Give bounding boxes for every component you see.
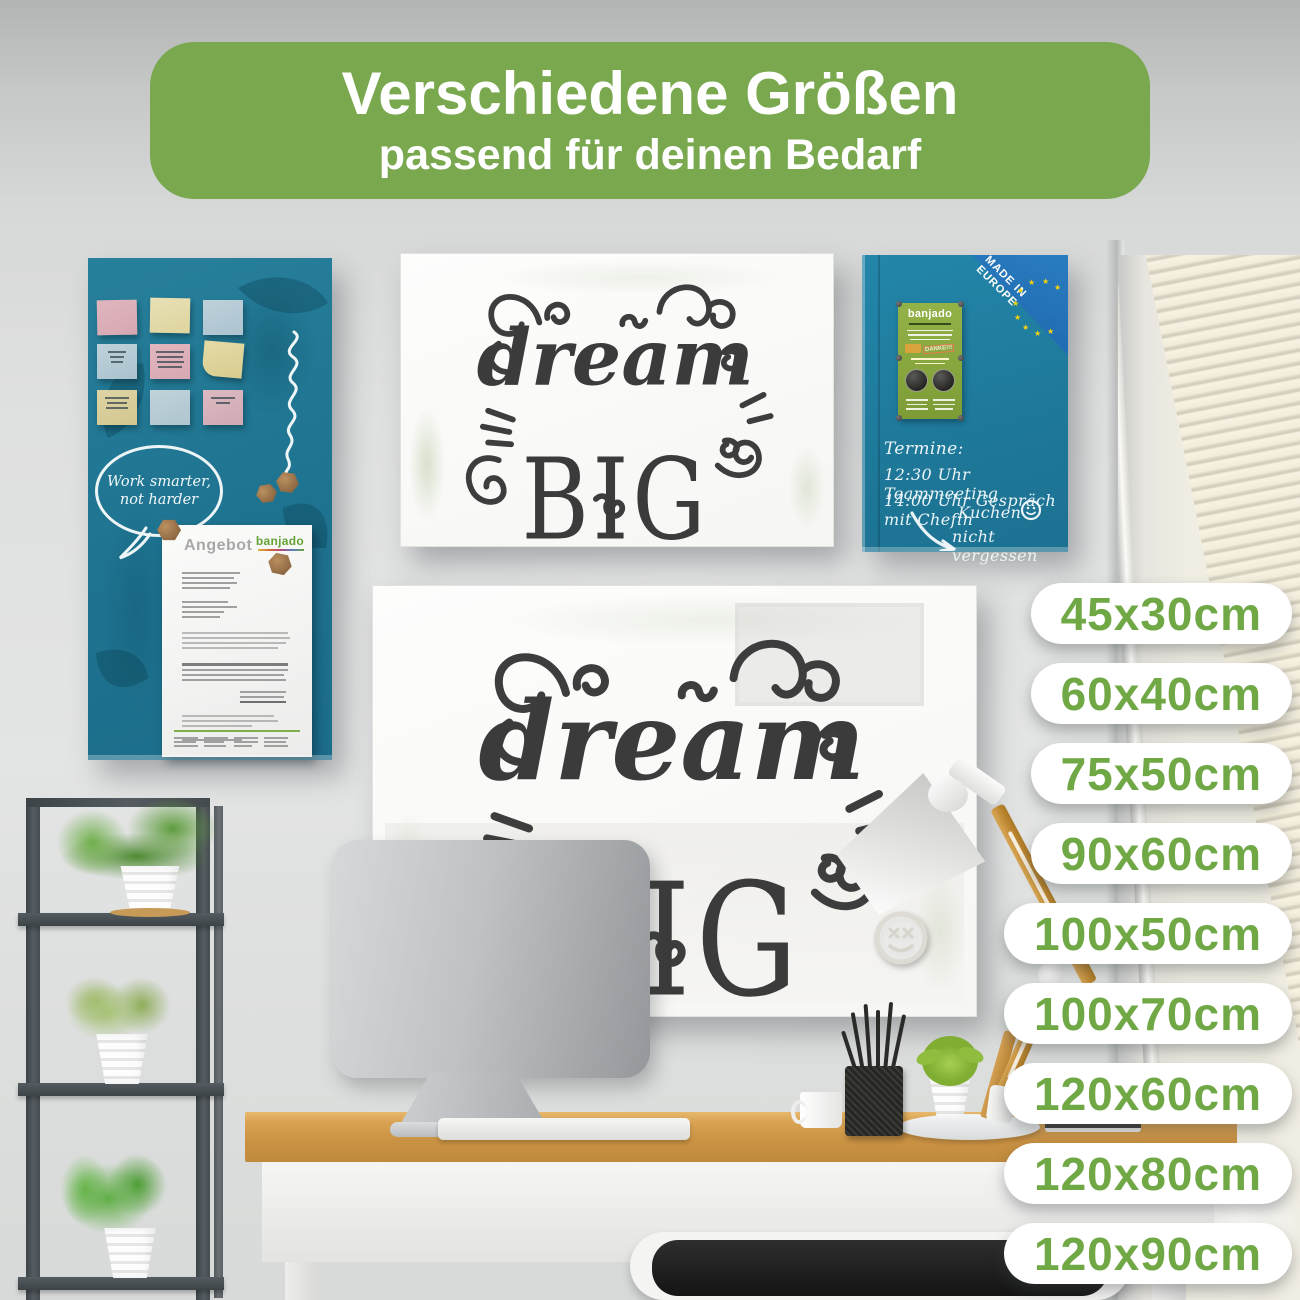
bubble-text-line1: Work smarter, xyxy=(107,473,211,491)
sticky-note xyxy=(97,390,137,425)
plant-pot xyxy=(102,1228,158,1278)
glass-reflection xyxy=(878,255,880,552)
flyer-brand: banjado xyxy=(898,308,962,320)
magnet-pin-icon xyxy=(896,355,902,361)
size-badge: 75x50cm xyxy=(1031,743,1292,804)
header-banner: Verschiedene Größen passend für deinen B… xyxy=(150,42,1150,199)
magnet-pin-icon xyxy=(958,301,964,307)
handwriting-heading: Termine: xyxy=(884,439,964,459)
glass-noteboard: Work smarter, not harder Angebot banjado xyxy=(88,258,332,760)
size-badge: 100x70cm xyxy=(1004,983,1292,1044)
desk-leg xyxy=(285,1262,319,1300)
document-footer xyxy=(174,727,300,749)
document-title: Angebot xyxy=(184,537,252,555)
potted-plant xyxy=(56,1148,172,1240)
shelf-board xyxy=(18,1083,224,1096)
page-title: Verschiedene Größen xyxy=(342,62,959,125)
page-subtitle: passend für deinen Bedarf xyxy=(379,131,921,180)
speech-bubble-tail xyxy=(116,526,156,562)
smiley-icon xyxy=(1020,499,1042,521)
size-badge: 60x40cm xyxy=(1031,663,1292,724)
keyboard xyxy=(438,1118,690,1140)
glass-planner-board: MADE IN EUROPE ★ ★ ★ ★ ★ ★ ★ ★ ★ banjado… xyxy=(862,255,1068,552)
size-badge: 120x90cm xyxy=(1004,1223,1292,1284)
dog-photo xyxy=(932,369,955,392)
dream-word: dream xyxy=(477,312,754,403)
big-word: BIG xyxy=(521,436,709,541)
size-badge: 120x60cm xyxy=(1004,1063,1292,1124)
dog-photo xyxy=(905,369,928,392)
sticky-note xyxy=(150,344,190,379)
pencil-cup xyxy=(845,1066,903,1136)
sticky-note xyxy=(97,300,138,336)
size-badge: 100x50cm xyxy=(1004,903,1292,964)
dog-photos xyxy=(898,369,962,392)
product-scene: Verschiedene Größen passend für deinen B… xyxy=(0,0,1300,1300)
logo-colorbar xyxy=(258,549,304,551)
glass-edge xyxy=(88,755,332,760)
size-badge-list: 45x30cm 60x40cm 75x50cm 90x60cm 100x50cm… xyxy=(1004,583,1292,1284)
dream-big-board-small: dream BIG xyxy=(400,253,834,547)
plant-pot xyxy=(94,1034,150,1084)
lamp-cap xyxy=(928,778,968,812)
coffee-mug xyxy=(800,1092,842,1128)
handwriting-cake2: nicht vergessen xyxy=(952,527,1068,565)
squiggle-doodle xyxy=(284,328,308,478)
magnet-pin-icon xyxy=(958,415,964,421)
shelf-rail xyxy=(26,800,40,1300)
sticky-note xyxy=(150,390,190,425)
glass-edge xyxy=(862,255,865,552)
size-badge: 45x30cm xyxy=(1031,583,1292,644)
plant-pot xyxy=(118,866,182,914)
magnet-pin-icon xyxy=(896,415,902,421)
sticky-note xyxy=(203,390,243,425)
handwriting-cake1: Kuchen xyxy=(958,503,1021,522)
succulent-plant xyxy=(922,1036,978,1086)
imac-back xyxy=(332,840,650,1078)
pot-saucer xyxy=(110,908,190,917)
dream-big-artwork: dream BIG xyxy=(414,260,820,540)
bubble-text-line2: not harder xyxy=(120,491,198,509)
offer-document: Angebot banjado xyxy=(162,525,312,757)
sticky-note xyxy=(97,344,137,379)
sticky-note xyxy=(203,300,243,335)
size-badge: 120x80cm xyxy=(1004,1143,1292,1204)
magnet-pin-icon xyxy=(896,301,902,307)
shelf-rail xyxy=(214,806,223,1298)
flyer-highlight-box xyxy=(905,344,921,353)
sticky-note xyxy=(202,340,245,378)
glass-edge xyxy=(862,547,1068,552)
danke-stamp: DANKE!!! xyxy=(923,343,955,354)
document-text-lines xyxy=(182,569,290,744)
size-badge: 90x60cm xyxy=(1031,823,1292,884)
dream-word: dream xyxy=(479,677,866,805)
speech-bubble: Work smarter, not harder xyxy=(95,445,223,537)
shelf-board xyxy=(18,1277,224,1290)
shelf-rail xyxy=(196,800,210,1300)
smiley-magnet-icon xyxy=(871,908,931,968)
sticky-note xyxy=(150,298,191,334)
magnet-pin-icon xyxy=(958,355,964,361)
banjado-logo: banjado xyxy=(256,534,304,548)
banjado-flyer: banjado DANKE!!! xyxy=(898,303,962,419)
